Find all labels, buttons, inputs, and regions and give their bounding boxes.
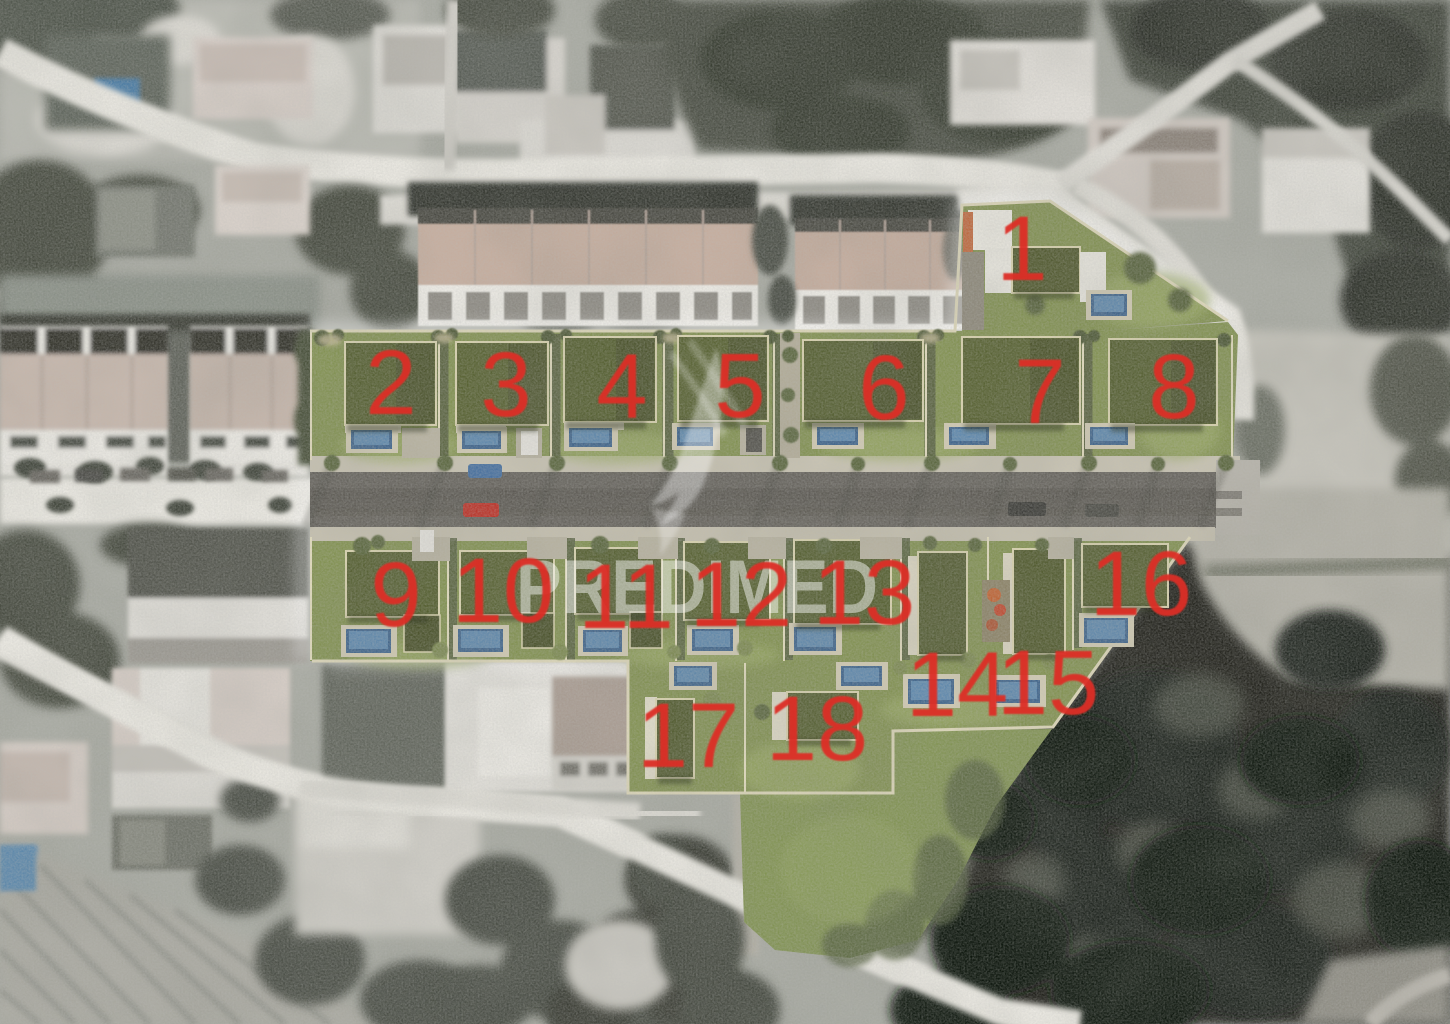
svg-text:18: 18 <box>766 678 868 780</box>
svg-text:15: 15 <box>997 632 1099 734</box>
svg-text:13: 13 <box>813 542 915 644</box>
svg-text:1: 1 <box>996 198 1047 300</box>
svg-text:3: 3 <box>480 334 531 436</box>
svg-text:10: 10 <box>452 540 554 642</box>
svg-text:4: 4 <box>596 336 647 438</box>
svg-text:8: 8 <box>1148 336 1199 438</box>
svg-text:6: 6 <box>858 337 909 439</box>
svg-text:11: 11 <box>578 546 674 648</box>
svg-text:5: 5 <box>714 335 765 437</box>
svg-text:2: 2 <box>365 332 416 434</box>
svg-text:16: 16 <box>1090 533 1192 635</box>
svg-text:14: 14 <box>906 634 1008 736</box>
svg-text:7: 7 <box>1014 341 1065 443</box>
svg-text:12: 12 <box>690 544 792 646</box>
svg-text:9: 9 <box>370 544 421 646</box>
svg-text:17: 17 <box>637 685 739 787</box>
